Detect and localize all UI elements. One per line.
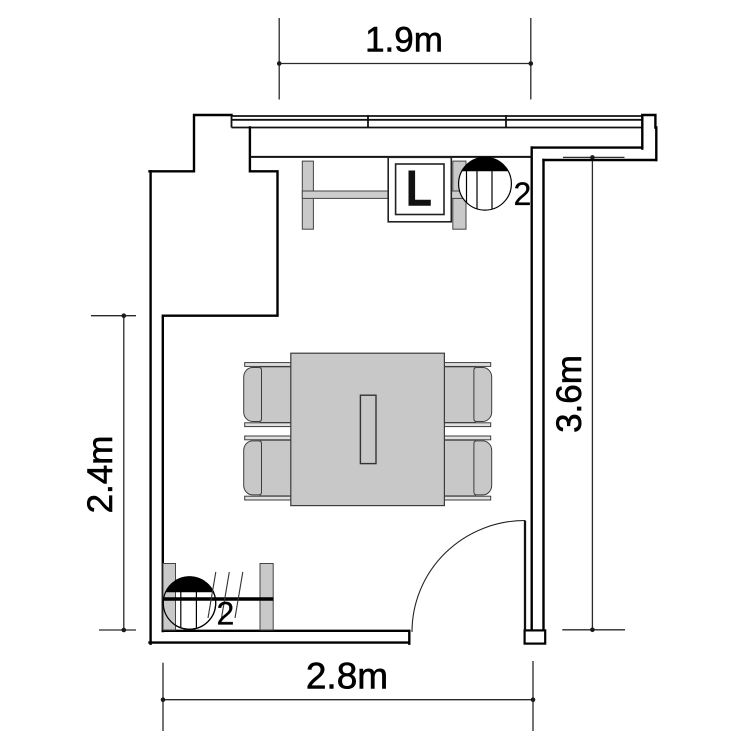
svg-text:2.8m: 2.8m (306, 656, 388, 697)
svg-text:2.4m: 2.4m (81, 436, 120, 514)
svg-text:3.6m: 3.6m (550, 355, 589, 433)
svg-text:2: 2 (217, 596, 235, 632)
svg-text:1.9m: 1.9m (365, 21, 443, 60)
svg-text:2: 2 (514, 176, 532, 212)
